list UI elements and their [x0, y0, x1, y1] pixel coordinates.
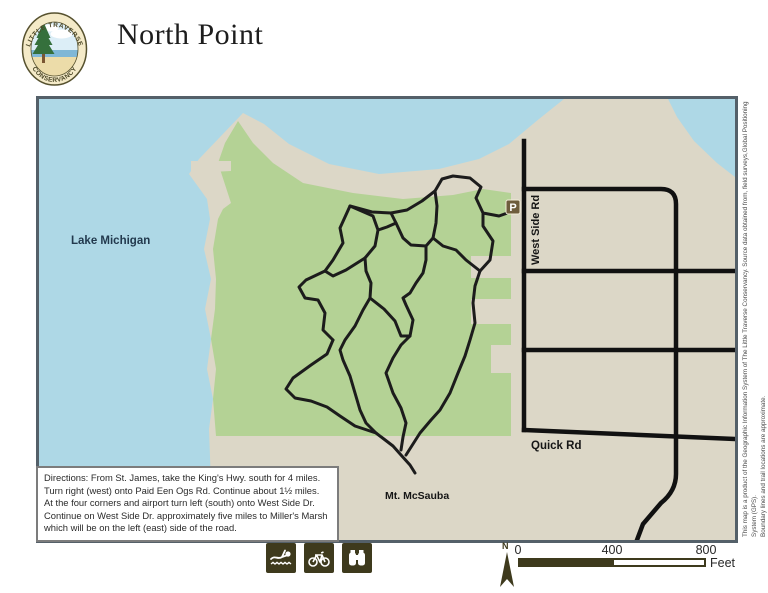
scale-tick-800: 800: [696, 543, 717, 557]
parking-marker: P: [506, 200, 520, 214]
map-production-note-line1: This map is a product of the Geographic …: [741, 96, 759, 537]
swimming-icon: [266, 543, 296, 573]
mt-mcsauba-label: Mt. McSauba: [385, 490, 449, 502]
map-production-note-line2: Boundary lines and trail locations are a…: [759, 96, 768, 537]
bicycle-icon: [304, 543, 334, 573]
trail-map-page: { "header": { "title": "North Point", "l…: [0, 0, 768, 593]
clearing-notch: [491, 345, 511, 373]
west-side-rd-label: West Side Rd: [530, 195, 542, 265]
map-production-note: This map is a product of the Geographic …: [741, 96, 768, 537]
scale-unit: Feet: [710, 556, 735, 570]
beach-finger: [191, 161, 231, 173]
scale-tick-0: 0: [515, 543, 522, 557]
scale-tick-400: 400: [602, 543, 623, 557]
scale-bar-filled: [518, 558, 612, 567]
lake-michigan-label: Lake Michigan: [71, 235, 150, 247]
clearing-notch: [471, 299, 511, 324]
binoculars-icon: [342, 543, 372, 573]
scale-bar-empty: [612, 558, 706, 567]
conservancy-logo: LITTLE TRAVERSE CONSERVANCY: [21, 12, 88, 86]
quick-rd-label: Quick Rd: [531, 440, 581, 452]
parking-label: P: [509, 202, 516, 214]
page-title: North Point: [117, 18, 263, 52]
directions-box: Directions: From St. James, take the Kin…: [36, 466, 339, 542]
conservancy-logo-emblem: LITTLE TRAVERSE CONSERVANCY: [21, 12, 88, 86]
amenity-icons: [266, 543, 372, 573]
north-and-scale: N 0 400 800 Feet: [494, 541, 758, 593]
